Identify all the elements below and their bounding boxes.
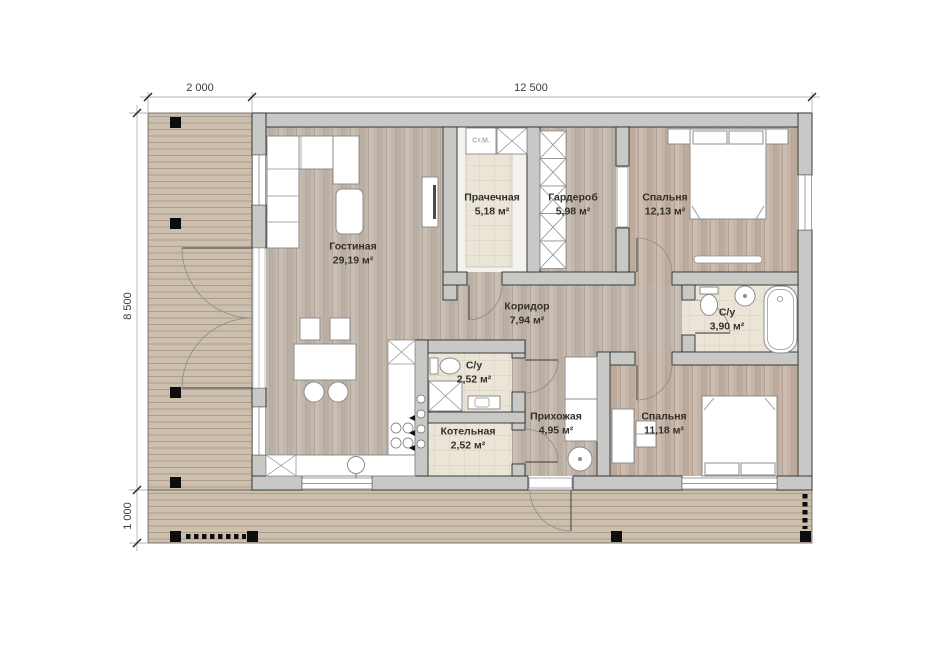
room-label-bathroom2: С/у 2,52 м² [457,359,492,386]
coffee-table [336,189,363,234]
room-name: Прачечная [464,191,520,205]
room-area: 29,19 м² [329,254,376,268]
window-left-upper [253,155,266,205]
room-name: Котельная [441,425,496,439]
bench [694,256,762,263]
dining-chair [330,318,350,340]
room-name: Спальня [642,191,687,205]
room-label-bedroom1: Спальня 12,13 м² [642,191,687,218]
dimension-top-left: 2 000 [186,82,214,94]
window-bedroom1-right [799,175,812,230]
desk [612,409,634,463]
patio-door-glazing [253,248,265,388]
basin [475,398,489,407]
dimension-top-span: 12 500 [514,82,548,94]
washing-machine-label: Ст.М. [472,138,490,145]
floor-passage [443,300,457,345]
room-name: Коридор [504,300,549,314]
room-name: С/у [457,359,492,373]
room-area: 11,18 м² [641,424,686,438]
room-name: Гардероб [548,191,598,205]
room-area: 4,95 м² [530,424,582,438]
dining-chair [300,318,320,340]
room-label-laundry: Прачечная 5,18 м² [464,191,520,218]
room-area: 2,52 м² [441,439,496,453]
dining-stool [304,382,324,402]
dimension-left-side: 8 500 [122,292,134,320]
wardrobe-sliding-door [617,167,628,227]
room-name: Спальня [641,410,686,424]
room-label-bedroom2: Спальня 11,18 м² [641,410,686,437]
room-area: 3,90 м² [710,320,745,334]
nightstand [766,129,788,144]
window-bedroom2-bottom [682,478,777,489]
window-living-bottom [302,478,372,489]
entry-threshold [529,478,572,488]
tv [433,185,436,219]
pillow [729,131,763,144]
room-area: 5,18 м² [464,205,520,219]
room-area: 5,98 м² [548,205,598,219]
room-label-corridor: Коридор 7,94 м² [504,300,549,327]
dimension-bottom-left: 1 000 [122,502,134,530]
toilet-tank [430,358,438,374]
dining-stool [328,382,348,402]
room-label-boiler: Котельная 2,52 м² [441,425,496,452]
room-name: Гостиная [329,240,376,254]
room-label-living: Гостиная 29,19 м² [329,240,376,267]
room-label-wardrobe: Гардероб 5,98 м² [548,191,598,218]
dining-table [294,344,356,380]
window-left-lower [253,407,266,455]
pillow [705,463,739,475]
room-area: 2,52 м² [457,373,492,387]
floor-plan-drawing [0,0,950,672]
floor-plan-page: 2 000 12 500 8 500 1 000 Ст.М. Гостиная … [0,0,950,672]
room-area: 12,13 м² [642,205,687,219]
room-name: Прихожая [530,410,582,424]
hall-closet [565,357,597,399]
toilet-tank [700,287,718,294]
room-label-bathroom1: С/у 3,90 м² [710,306,745,333]
room-label-hall: Прихожая 4,95 м² [530,410,582,437]
nightstand [668,129,690,144]
pillow [693,131,727,144]
room-name: С/у [710,306,745,320]
pillow [741,463,775,475]
room-area: 7,94 м² [504,314,549,328]
